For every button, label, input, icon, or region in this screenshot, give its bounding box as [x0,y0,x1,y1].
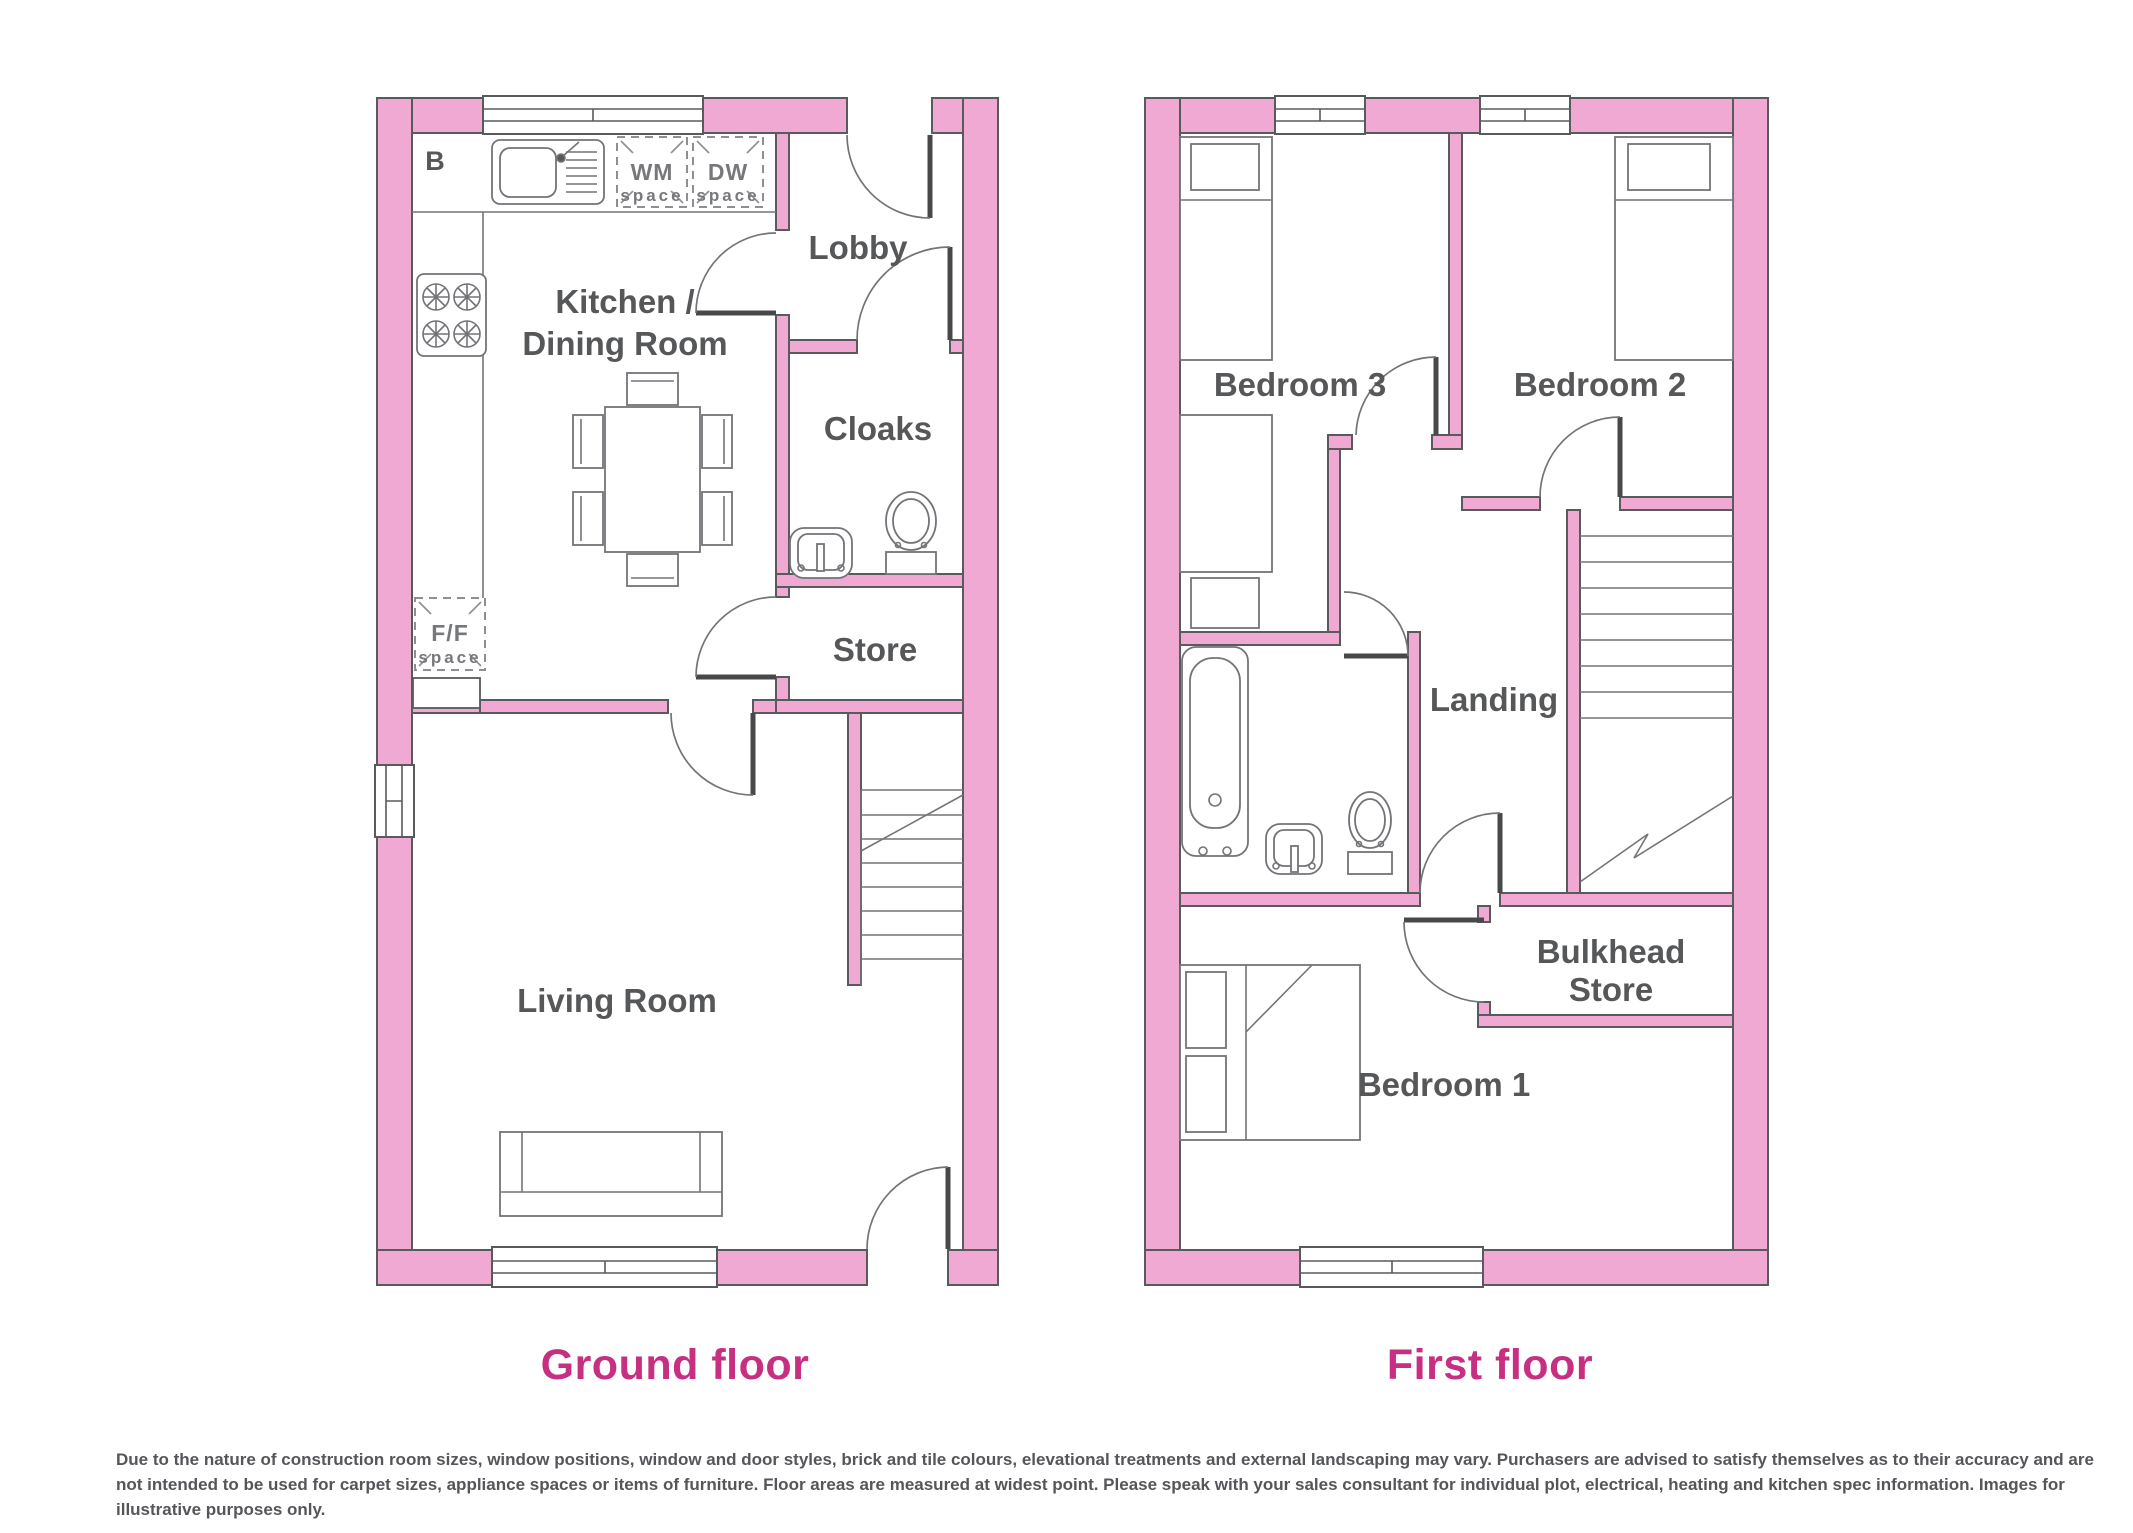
ff-space-label: F/F [431,620,469,646]
bedroom3-bed-icon [1180,137,1272,360]
wm-space-sublabel: space [620,186,683,205]
dw-space-label: DW [708,159,748,185]
wm-space-box: WM space [617,137,687,207]
hob-icon [417,274,486,356]
bedroom1-bed-icon [1180,965,1360,1140]
wm-space-label: WM [631,159,674,185]
sink-icon [492,140,604,204]
disclaimer: Due to the nature of construction room s… [116,1450,2094,1519]
ff-space-sublabel: space [418,648,481,667]
ground-staircase [861,790,963,985]
sofa-icon [500,1132,722,1216]
kitchen-window [483,96,703,134]
bathroom-basin-icon [1266,824,1322,874]
cloaks-basin-icon [790,528,852,578]
bath-icon [1182,647,1248,856]
front-door [867,1167,948,1249]
bedroom1-label: Bedroom 1 [1358,1066,1530,1103]
dw-space-sublabel: space [696,186,759,205]
disclaimer-line3: illustrative purposes only. [116,1500,325,1519]
bathroom-toilet-icon [1348,792,1392,874]
ground-floor-plan: WM space DW space F/F space [375,96,998,1287]
first-staircase [1580,536,1733,882]
floorplan-page: WM space DW space F/F space [0,0,2133,1533]
lobby-entrance-door [847,135,930,218]
ground-floor-title: Ground floor [541,1341,810,1389]
living-room-door [671,713,753,795]
kitchen-label-line2: Dining Room [522,325,727,362]
dining-table-icon [573,373,732,586]
ff-space-box: F/F space [415,598,485,670]
first-floor-title: First floor [1387,1341,1593,1389]
floorplan-canvas: WM space DW space F/F space [0,0,2133,1533]
lobby-label: Lobby [809,229,909,266]
bedroom3-window [1275,96,1365,134]
bedroom2-label: Bedroom 2 [1514,366,1686,403]
landing-label: Landing [1430,681,1558,718]
bedroom1-window [1300,1247,1483,1287]
bulkhead-store-door [1404,920,1484,1002]
captions: Ground floor First floor [541,1341,1593,1389]
store-door [696,597,776,677]
disclaimer-line1: Due to the nature of construction room s… [116,1450,2094,1469]
bathroom-door [1344,592,1408,656]
bedroom2-window [1480,96,1570,134]
bulkhead-store-label-line1: Bulkhead [1537,933,1686,970]
living-room-side-window [375,765,414,837]
store-label: Store [833,631,917,668]
chimney-recess [413,678,480,708]
bedroom2-door [1540,417,1620,497]
dw-space-box: DW space [693,137,763,207]
kitchen-label-line1: Kitchen / [555,283,694,320]
disclaimer-line2: not intended to be used for carpet sizes… [116,1475,2065,1494]
living-room-window [492,1247,717,1287]
living-room-label: Living Room [517,982,717,1019]
bedroom1-door [1420,813,1500,893]
first-floor-plan: Bedroom 3 Bedroom 2 Landing Bulkhead Sto… [1145,96,1768,1287]
cloaks-toilet-icon [886,492,936,574]
bedroom3-wardrobe-icon [1180,415,1272,628]
bulkhead-store-label-line2: Store [1569,971,1653,1008]
bedroom3-label: Bedroom 3 [1214,366,1386,403]
cloaks-label: Cloaks [824,410,932,447]
kitchen-door [696,233,776,313]
bedroom2-bed-icon [1615,137,1733,360]
boiler-label: B [425,146,445,176]
